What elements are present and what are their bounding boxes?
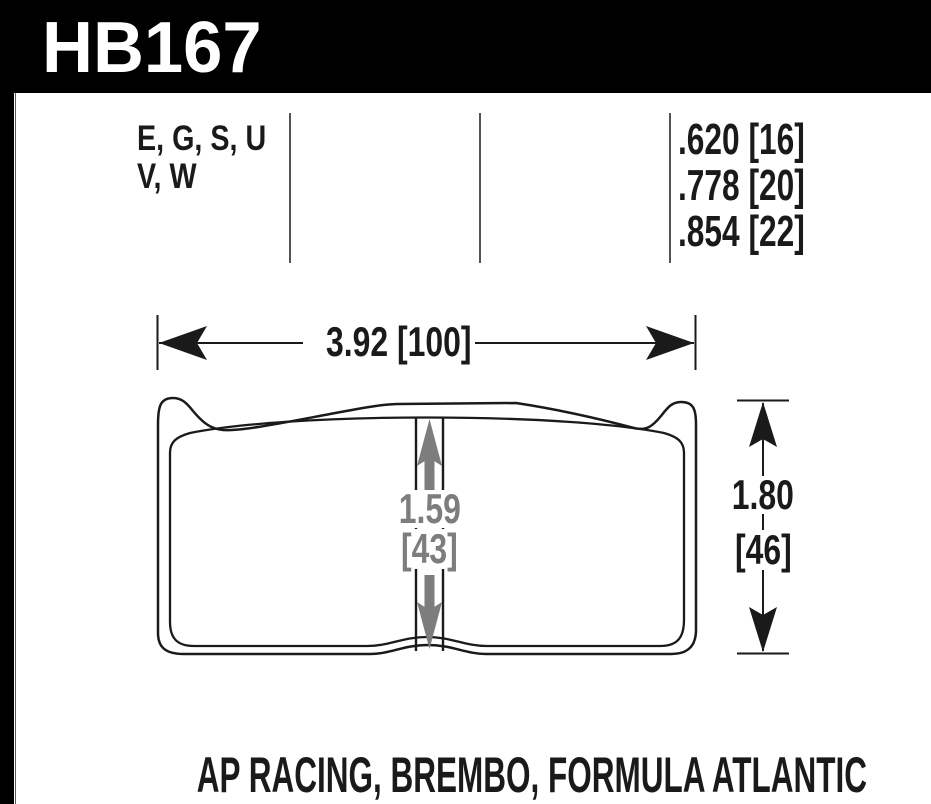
center-height-label-mm: [43] [387,529,472,569]
brake-pad-drawing [0,0,931,804]
center-arrow-down-shaft [425,575,435,611]
center-height-label-inches: 1.59 [387,490,472,528]
brake-pad-datasheet: HB167 E, G, S, U V, W .620 [16] .778 [20… [0,0,931,804]
applications-text: AP RACING, BREMBO, FORMULA ATLANTIC [0,750,931,800]
height-dimension-label-inches: 1.80 [721,476,805,514]
width-dimension-label: 3.92 [100] [303,320,475,364]
height-dimension-label-mm: [46] [721,530,805,570]
